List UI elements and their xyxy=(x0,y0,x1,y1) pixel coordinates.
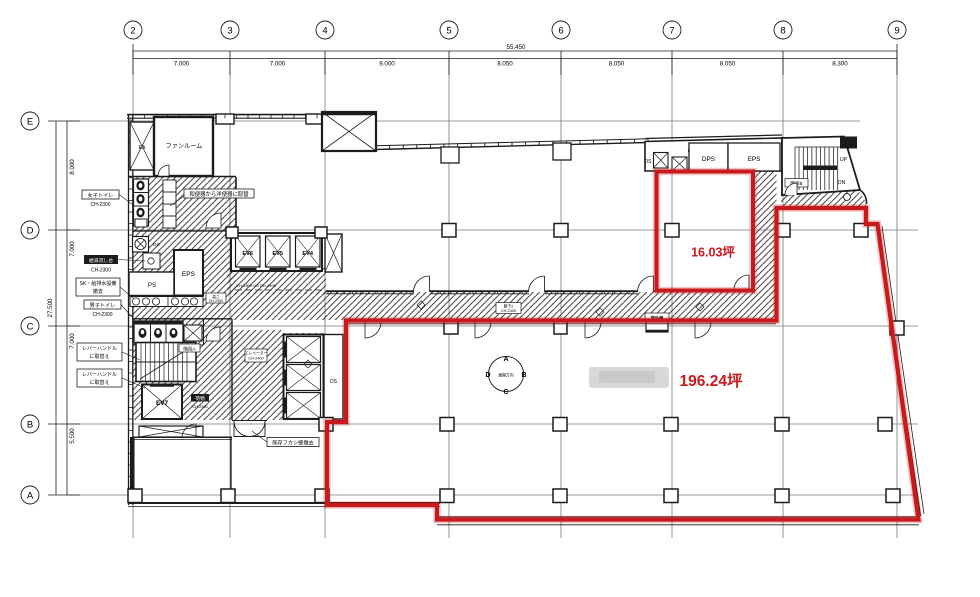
svg-text:エレベーター: エレベーター xyxy=(245,351,268,356)
svg-text:和便器から洋便器に取替: 和便器から洋便器に取替 xyxy=(189,190,249,198)
svg-text:5.500: 5.500 xyxy=(69,428,76,444)
svg-text:A: A xyxy=(503,356,508,363)
svg-text:女子トイレ: 女子トイレ xyxy=(88,191,114,199)
svg-text:CH-2300+40 CH-2400: CH-2300+40 CH-2400 xyxy=(236,283,277,288)
svg-text:給湯流し台: 給湯流し台 xyxy=(89,257,113,264)
svg-text:ファンルーム: ファンルーム xyxy=(166,143,203,150)
svg-text:9.000: 9.000 xyxy=(379,61,395,68)
svg-text:CH-2300: CH-2300 xyxy=(90,202,110,208)
svg-text:EV6: EV6 xyxy=(242,251,253,257)
svg-text:196.24坪: 196.24坪 xyxy=(680,372,743,390)
svg-text:階段A: 階段A xyxy=(183,346,196,353)
svg-text:既存フカシ壁撤去: 既存フカシ壁撤去 xyxy=(272,439,314,447)
svg-text:に取替え: に取替え xyxy=(89,379,109,386)
svg-text:DS: DS xyxy=(153,242,160,248)
svg-text:5: 5 xyxy=(446,26,451,37)
svg-text:B: B xyxy=(521,372,526,379)
svg-text:男子トイレ: 男子トイレ xyxy=(90,302,116,309)
svg-text:CH-2300: CH-2300 xyxy=(209,299,223,303)
svg-text:CH-2300: CH-2300 xyxy=(192,405,207,409)
svg-text:撤去: 撤去 xyxy=(93,288,103,295)
svg-text:に取替え: に取替え xyxy=(89,353,109,360)
svg-text:EPS: EPS xyxy=(748,156,761,163)
svg-text:2: 2 xyxy=(130,26,135,37)
svg-text:E: E xyxy=(27,117,33,128)
svg-text:EV4: EV4 xyxy=(302,251,313,257)
svg-text:廊下2: 廊下2 xyxy=(504,304,514,309)
svg-text:CH-2400: CH-2400 xyxy=(248,357,263,361)
svg-text:展開方向: 展開方向 xyxy=(498,373,513,378)
svg-text:EA: EA xyxy=(139,145,146,151)
svg-text:8.300: 8.300 xyxy=(832,61,848,68)
svg-text:7.000: 7.000 xyxy=(270,61,286,68)
svg-text:レバーハンドル: レバーハンドル xyxy=(82,372,117,378)
svg-text:8.050: 8.050 xyxy=(720,61,736,68)
svg-text:DS: DS xyxy=(330,379,338,385)
svg-text:UP: UP xyxy=(840,157,848,163)
svg-text:PS: PS xyxy=(148,282,156,289)
svg-text:C: C xyxy=(503,389,508,396)
svg-text:EPS: EPS xyxy=(182,271,196,278)
svg-text:8.050: 8.050 xyxy=(609,61,625,68)
svg-text:荷物: 荷物 xyxy=(195,395,205,402)
svg-text:9: 9 xyxy=(894,26,899,37)
svg-text:CH-2300: CH-2300 xyxy=(91,268,111,274)
svg-text:レバーハンドル: レバーハンドル xyxy=(82,346,117,352)
svg-text:8.050: 8.050 xyxy=(497,61,513,68)
svg-text:8.000: 8.000 xyxy=(69,159,76,175)
svg-text:DN: DN xyxy=(838,180,846,186)
svg-text:CH-2400: CH-2400 xyxy=(501,309,516,313)
svg-text:4: 4 xyxy=(322,26,327,37)
svg-text:DPS: DPS xyxy=(702,156,715,163)
svg-text:6: 6 xyxy=(558,26,563,37)
svg-text:7.000: 7.000 xyxy=(174,61,190,68)
svg-text:7.000: 7.000 xyxy=(69,333,76,349)
svg-text:EV5: EV5 xyxy=(272,251,283,257)
svg-text:EV7: EV7 xyxy=(156,400,169,407)
svg-text:55.450: 55.450 xyxy=(507,44,526,51)
svg-text:8: 8 xyxy=(780,26,785,37)
svg-text:7: 7 xyxy=(669,26,674,37)
svg-text:7.000: 7.000 xyxy=(69,241,76,257)
svg-text:D: D xyxy=(27,226,34,237)
svg-text:C: C xyxy=(27,322,34,333)
svg-text:3: 3 xyxy=(227,26,232,37)
svg-text:DS: DS xyxy=(645,159,653,165)
svg-text:16.03坪: 16.03坪 xyxy=(691,246,735,260)
svg-text:B: B xyxy=(27,420,33,431)
svg-text:D: D xyxy=(485,372,490,379)
svg-text:A: A xyxy=(27,491,34,502)
svg-text:SK・給排水設備: SK・給排水設備 xyxy=(80,280,117,287)
svg-text:CH-2300: CH-2300 xyxy=(92,312,112,318)
svg-text:27.500: 27.500 xyxy=(47,298,54,317)
